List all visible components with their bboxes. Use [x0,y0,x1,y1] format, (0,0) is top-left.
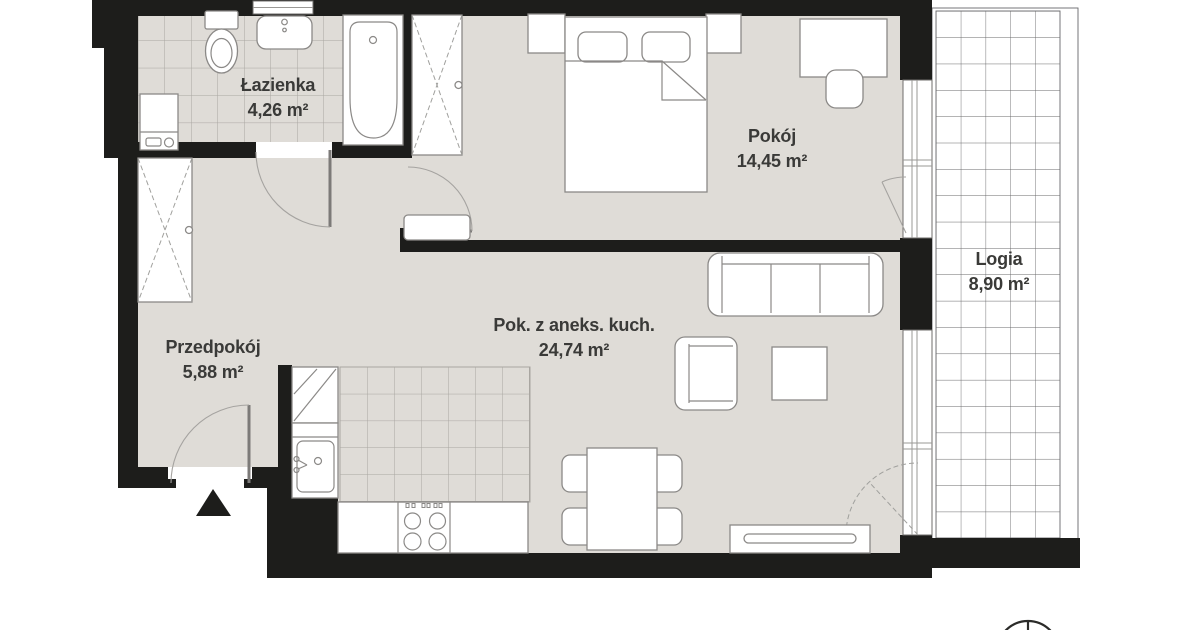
dining-table [587,448,657,550]
room-area: 5,88 m² [128,360,298,385]
room-label-lazienka: Łazienka 4,26 m² [193,73,363,123]
sofa [708,253,883,316]
floor-plan: Łazienka 4,26 m² Pokój 14,45 m² Przedpok… [0,0,1200,630]
pillow [578,32,627,62]
armchair [675,337,737,410]
room-area: 14,45 m² [687,149,857,174]
outside-area [0,488,268,630]
double-bed [565,17,707,192]
room-name: Przedpokój [128,335,298,360]
room-area: 4,26 m² [193,98,363,123]
desk [800,19,887,77]
room-name: Łazienka [193,73,363,98]
pillow [642,32,690,62]
desk-chair [826,70,863,108]
toilet [205,11,238,73]
kitchen-sink [292,423,338,498]
room-area: 24,74 m² [489,338,659,363]
room-area: 8,90 m² [914,272,1084,297]
hall-wardrobe [138,158,193,302]
room-label-przedpokoj: Przedpokój 5,88 m² [128,335,298,385]
tv [744,534,856,543]
room-label-pokoj: Pokój 14,45 m² [687,124,857,174]
dresser [404,215,470,240]
room-label-pok-z-aneks-kuch: Pok. z aneks. kuch. 24,74 m² [489,313,659,363]
washbasin [257,16,312,49]
compass-icon [997,620,1059,630]
room-label-logia: Logia 8,90 m² [914,247,1084,297]
room-name: Pok. z aneks. kuch. [489,313,659,338]
washing-machine [140,94,178,150]
tv-cabinet [730,525,870,553]
nightstand-left [528,14,565,53]
kitchen-tile-floor [340,367,530,502]
nightstand-right [706,14,741,53]
room-name: Pokój [687,124,857,149]
room-name: Logia [914,247,1084,272]
fridge [292,367,338,423]
kitchen-counter [338,502,528,553]
coffee-table [772,347,827,400]
bedroom-wardrobe [412,15,462,155]
